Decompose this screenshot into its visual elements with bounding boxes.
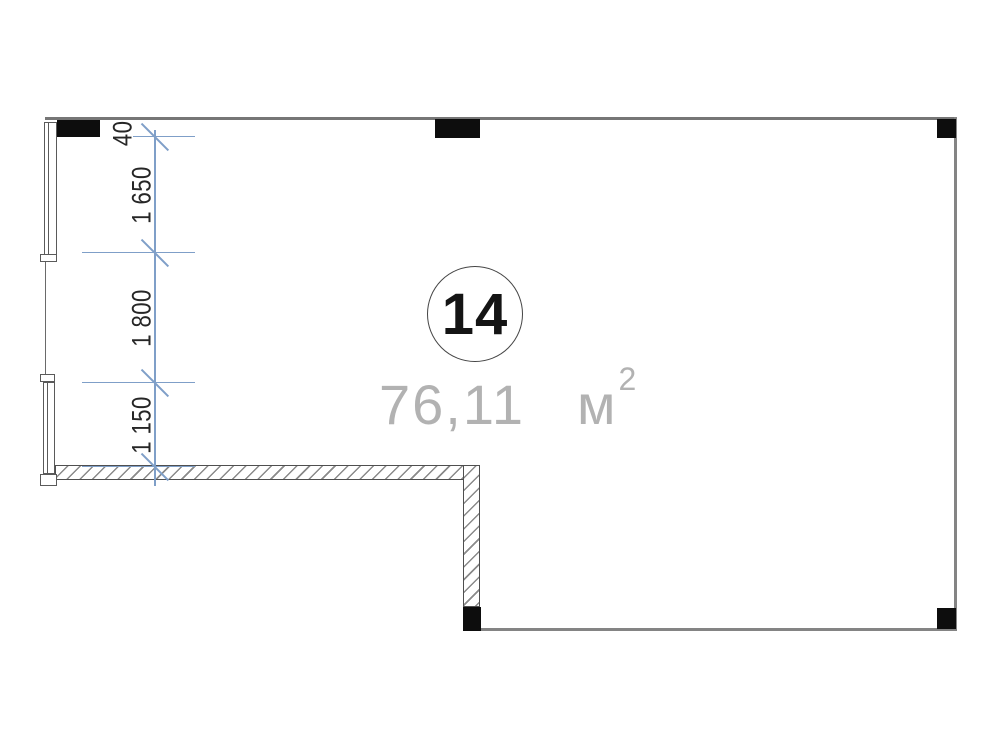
wall-column-top-left — [57, 120, 100, 137]
window-foot-detail — [40, 474, 57, 486]
hatched-wall-horizontal — [55, 465, 480, 480]
hatched-wall-vertical — [463, 465, 480, 607]
dimension-line — [154, 130, 156, 486]
wall-column-top-right — [937, 119, 956, 138]
area-label: 76,11 м 2 — [379, 377, 636, 433]
window-symbol-upper — [44, 122, 57, 255]
wall-column-top-middle — [435, 119, 480, 138]
area-unit: м — [577, 377, 616, 433]
area-exponent: 2 — [618, 363, 636, 395]
dimension-witness-line — [82, 382, 195, 383]
wall-column-hatch-foot — [463, 607, 481, 631]
window-sill-upper — [40, 254, 57, 262]
right-wall — [954, 117, 957, 631]
top-wall — [45, 117, 957, 120]
unit-number: 14 — [442, 281, 509, 348]
dimension-witness-line — [133, 136, 195, 137]
wall-mullion-line — [45, 262, 46, 376]
dimension-witness-line — [82, 252, 195, 253]
floor-plan-canvas: 400 1 650 1 800 1 150 14 76,11 м 2 — [0, 0, 1000, 750]
label-clip-mask — [98, 88, 150, 119]
wall-column-bottom-right — [937, 608, 956, 629]
dimension-witness-line — [82, 466, 195, 467]
window-sill-lower — [40, 374, 55, 382]
bottom-wall — [479, 628, 957, 631]
window-symbol-lower — [43, 382, 55, 474]
unit-number-circle: 14 — [427, 266, 523, 362]
area-value: 76,11 — [379, 377, 525, 433]
